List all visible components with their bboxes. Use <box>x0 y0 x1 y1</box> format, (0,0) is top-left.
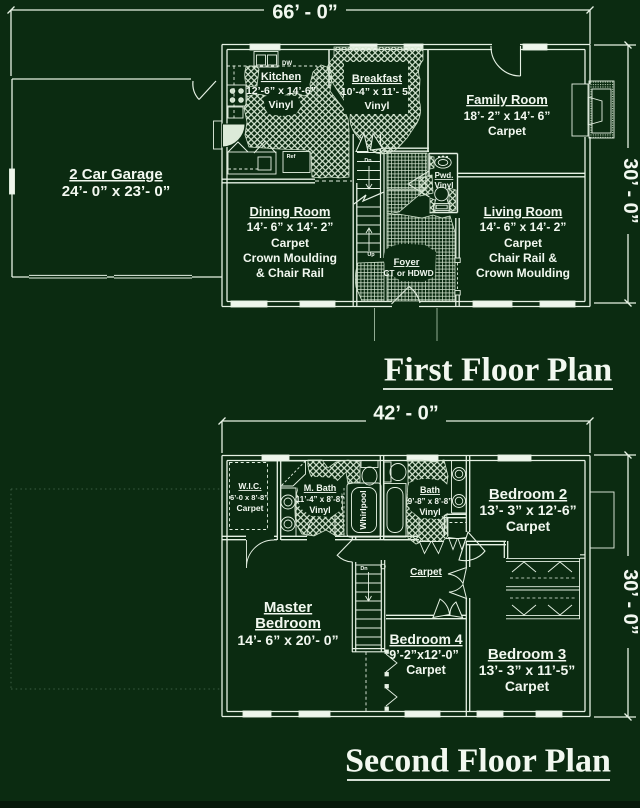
svg-text:Master: Master <box>264 599 313 616</box>
svg-text:13’- 3” x 12’-6”: 13’- 3” x 12’-6” <box>479 502 576 518</box>
svg-text:10’-4” x 11’- 5”: 10’-4” x 11’- 5” <box>341 86 413 98</box>
svg-text:Vinyl: Vinyl <box>309 505 330 515</box>
svg-text:42’ - 0”: 42’ - 0” <box>373 403 439 425</box>
svg-text:First Floor Plan: First Floor Plan <box>384 352 613 389</box>
svg-text:Dn: Dn <box>360 566 368 572</box>
svg-text:13’- 3” x 11’-5”: 13’- 3” x 11’-5” <box>479 662 576 678</box>
svg-text:Foyer: Foyer <box>394 257 420 268</box>
svg-text:M. Bath: M. Bath <box>304 483 337 493</box>
svg-text:14’- 6” x 14’- 2”: 14’- 6” x 14’- 2” <box>247 220 334 234</box>
svg-text:Bedroom 3: Bedroom 3 <box>488 646 566 663</box>
svg-text:Crown Moulding: Crown Moulding <box>243 251 337 265</box>
svg-text:Crown Moulding: Crown Moulding <box>476 266 570 280</box>
svg-text:Vinyl: Vinyl <box>365 100 390 112</box>
svg-text:Vinyl: Vinyl <box>435 181 454 190</box>
svg-text:Whirlpool: Whirlpool <box>358 490 368 529</box>
svg-text:6’-0 x 8’-8”: 6’-0 x 8’-8” <box>230 493 268 502</box>
svg-text:Living Room: Living Room <box>484 204 563 219</box>
svg-text:Family Room: Family Room <box>466 92 548 107</box>
svg-text:9’-2”x12’-0”: 9’-2”x12’-0” <box>389 648 458 662</box>
svg-text:66’ - 0”: 66’ - 0” <box>272 2 338 24</box>
svg-text:11’-4” x 8’-8”: 11’-4” x 8’-8” <box>296 495 344 504</box>
svg-text:12’-6” x 14’-6”: 12’-6” x 14’-6” <box>246 85 316 97</box>
svg-text:Carpet: Carpet <box>410 567 442 578</box>
svg-text:Carpet: Carpet <box>506 518 551 534</box>
svg-text:Ref: Ref <box>287 154 296 160</box>
svg-text:DW: DW <box>282 61 292 67</box>
svg-text:Bedroom 4: Bedroom 4 <box>389 631 462 647</box>
svg-text:Up: Up <box>367 252 375 258</box>
svg-text:Bedroom 2: Bedroom 2 <box>489 486 567 503</box>
svg-text:24’- 0” x 23’- 0”: 24’- 0” x 23’- 0” <box>62 183 170 200</box>
svg-text:Carpet: Carpet <box>504 236 542 250</box>
svg-text:Bedroom: Bedroom <box>255 615 321 632</box>
svg-text:CT or HDWD: CT or HDWD <box>383 268 433 278</box>
svg-text:2 Car Garage: 2 Car Garage <box>69 166 162 183</box>
svg-text:Breakfast: Breakfast <box>352 73 402 85</box>
svg-text:18’- 2” x 14’- 6”: 18’- 2” x 14’- 6” <box>464 109 551 123</box>
svg-text:9’-8” x 8’-8”: 9’-8” x 8’-8” <box>408 497 452 506</box>
svg-text:Second Floor Plan: Second Floor Plan <box>345 743 611 780</box>
svg-text:Pwd.: Pwd. <box>435 171 454 180</box>
svg-text:Carpet: Carpet <box>237 503 264 513</box>
svg-text:Vinyl: Vinyl <box>269 99 294 111</box>
svg-text:Carpet: Carpet <box>488 124 526 138</box>
svg-text:Bath: Bath <box>420 485 440 495</box>
svg-text:Carpet: Carpet <box>271 236 309 250</box>
svg-text:Dn: Dn <box>364 158 372 164</box>
svg-text:Carpet: Carpet <box>406 663 446 677</box>
svg-text:& Chair Rail: & Chair Rail <box>256 266 324 280</box>
svg-text:14’- 6” x 20’- 0”: 14’- 6” x 20’- 0” <box>237 632 338 648</box>
svg-text:30’ - 0”: 30’ - 0” <box>619 569 640 635</box>
svg-text:Vinyl: Vinyl <box>419 507 440 517</box>
svg-text:Kitchen: Kitchen <box>261 71 302 83</box>
svg-text:Chair Rail &: Chair Rail & <box>489 251 557 265</box>
svg-text:14’- 6” x 14’- 2”: 14’- 6” x 14’- 2” <box>480 220 567 234</box>
svg-text:Carpet: Carpet <box>505 678 550 694</box>
svg-text:W.I.C.: W.I.C. <box>238 481 261 491</box>
svg-text:30’ - 0”: 30’ - 0” <box>619 158 640 224</box>
svg-text:Dining Room: Dining Room <box>250 204 331 219</box>
